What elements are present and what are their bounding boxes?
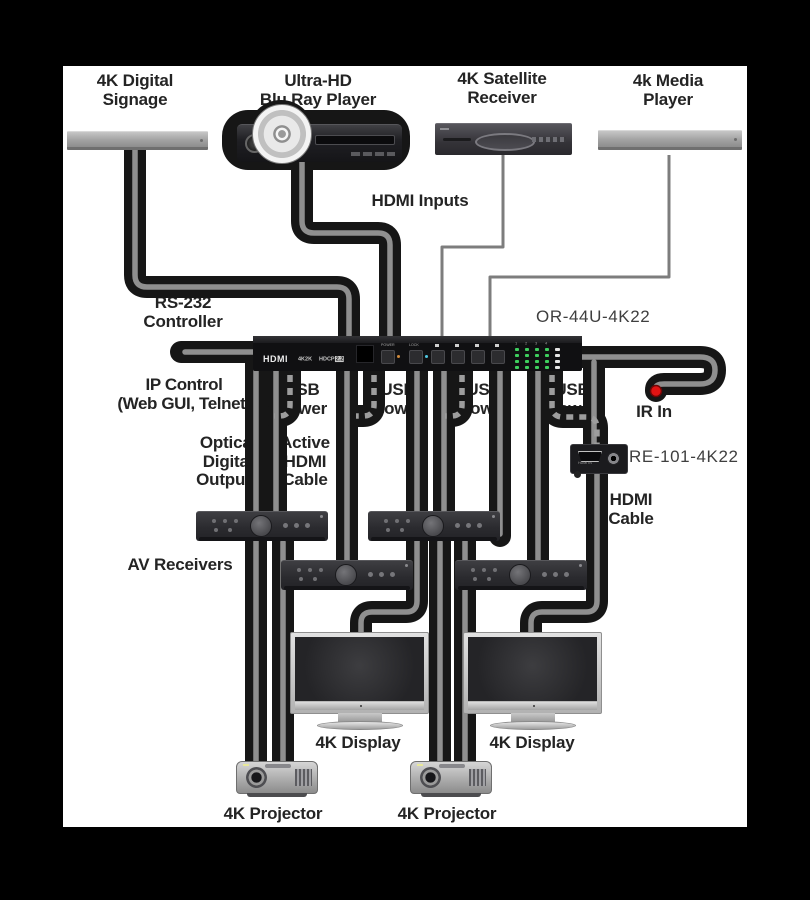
label-4k-display-1: 4K Display [316, 734, 401, 753]
device-4k-digital-signage [67, 131, 208, 150]
select-caption-3 [475, 344, 479, 347]
lock-caption: LOCK [409, 343, 419, 347]
label-4k-projector-1: 4K Projector [224, 805, 323, 824]
dc-power-jack [607, 452, 620, 465]
projector-led [417, 764, 423, 766]
device-av-receiver-3 [281, 560, 413, 590]
label-matrix-model: OR-44U-4K22 [536, 308, 650, 327]
display-screen [468, 637, 597, 701]
blu-ray-disc [252, 104, 312, 164]
badge-hdcp: HDCP2.2 [319, 356, 344, 362]
select-button-4 [491, 350, 505, 364]
power-led [200, 139, 203, 142]
label-4k-display-2: 4K Display [490, 734, 575, 753]
display-stand-base [317, 721, 403, 730]
label-hdmi-inputs: HDMI Inputs [372, 192, 469, 211]
badge-4k2k: 4K2K [298, 356, 312, 362]
device-4k-display-1 [290, 632, 429, 714]
select-caption-4 [495, 344, 499, 347]
display-screen [295, 637, 424, 701]
select-caption-1 [435, 344, 439, 347]
label-4k-digital-signage: 4K Digital Signage [97, 72, 173, 109]
hdmi-logo: HDMI [263, 354, 288, 364]
projector-lens [246, 767, 267, 788]
device-4k-display-2 [463, 632, 602, 714]
volume-knob [335, 564, 357, 586]
status-led [440, 128, 449, 130]
label-usb-power-3: USB Power [459, 381, 509, 418]
projector-top-panel [265, 764, 291, 768]
lock-led [425, 355, 428, 358]
device-4k-media-player [598, 130, 742, 150]
front-slot [443, 138, 471, 141]
label-usb-power-1: USB Power [277, 381, 327, 418]
label-hdmi-cable: HDMI Cable [608, 491, 653, 528]
label-av-receivers: AV Receivers [127, 556, 232, 575]
label-usb-power-2: USB Power [373, 381, 423, 418]
power-button [381, 350, 395, 364]
chassis-top-edge [253, 336, 582, 343]
projector-lens [420, 767, 441, 788]
select-caption-2 [455, 344, 459, 347]
label-ip-control: IP Control (Web GUI, Telnet) [117, 376, 250, 413]
power-led [734, 138, 737, 141]
display-bezel [468, 702, 597, 710]
label-4k-projector-2: 4K Projector [398, 805, 497, 824]
hdmi-port-label: HDMI IN [578, 461, 592, 465]
ir-window [356, 345, 374, 363]
power-caption: POWER [381, 343, 395, 347]
volume-knob [509, 564, 531, 586]
select-button-2 [451, 350, 465, 364]
select-button-1 [431, 350, 445, 364]
label-active-hdmi-cable: Active HDMI Cable [280, 434, 330, 490]
projector-top-panel [439, 764, 465, 768]
projector-vent [469, 769, 486, 786]
device-4k-projector-1 [236, 761, 318, 794]
select-button-3 [471, 350, 485, 364]
volume-knob [250, 515, 272, 537]
disc-tray [315, 135, 395, 145]
label-extender-model: RE-101-4K22 [629, 448, 739, 467]
device-av-receiver-1 [196, 511, 328, 541]
label-4k-media-player: 4k Media Player [633, 72, 703, 109]
device-av-receiver-4 [455, 560, 587, 590]
label-4k-satellite-receiver: 4K Satellite Receiver [457, 70, 546, 107]
label-rs232-controller: RS-232 Controller [143, 294, 222, 331]
volume-knob [422, 515, 444, 537]
device-hdmi-extender: HDMI IN [570, 444, 628, 474]
diagram-stage: 4K Digital Signage Ultra-HD Blu Ray Play… [0, 0, 810, 900]
device-av-receiver-2 [368, 511, 500, 541]
device-matrix-switcher: HDMI 4K2K HDCP2.2 POWER LOCK 1 2 3 4 [253, 336, 582, 371]
lock-button [409, 350, 423, 364]
label-ir-in: IR In [636, 403, 672, 422]
label-usb-power-4: USB Power [547, 381, 597, 418]
device-4k-projector-2 [410, 761, 492, 794]
front-buttons [532, 137, 566, 142]
display-stand-base [490, 721, 576, 730]
projector-led [243, 764, 249, 766]
display-bezel [295, 702, 424, 710]
projector-vent [295, 769, 312, 786]
label-optical-digital-outputs: Optical Digital Outputs [196, 434, 260, 490]
device-4k-satellite-receiver [435, 123, 572, 155]
power-led [397, 355, 400, 358]
ir-ext-nub [574, 471, 581, 478]
player-buttons [351, 152, 395, 156]
jog-dial [475, 133, 535, 151]
